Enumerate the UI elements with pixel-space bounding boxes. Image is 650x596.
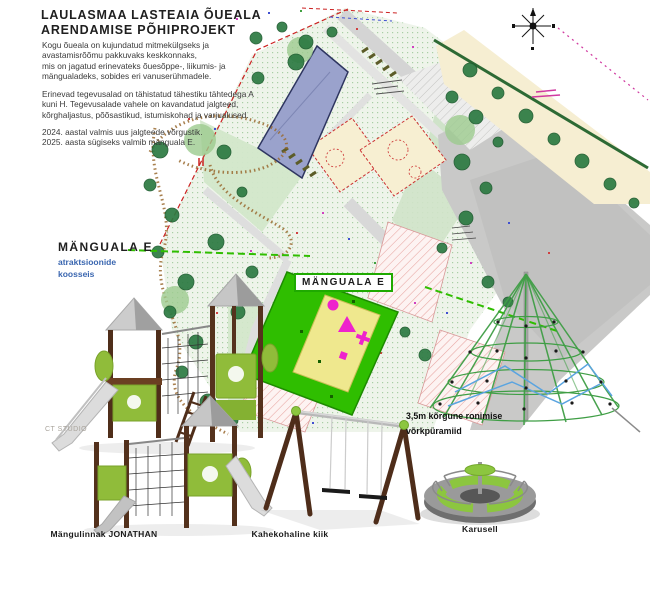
zones-line: kuni H. Tegevusalade vahele on kavandatu… xyxy=(42,99,254,109)
map-zone-label: MÄNGUALA E xyxy=(294,273,393,292)
label-playground-castle: Mängulinnak JONATHAN xyxy=(44,529,164,539)
intro-line: mis on jagatud erinevateks õuesõppe-, li… xyxy=(42,61,226,71)
label-carousel: Karusell xyxy=(440,524,520,534)
timeline-line: 2025. aasta sügiseks valmib mänguala E. xyxy=(42,137,203,147)
label-climbing-pyramid: 3,5m kõrgune ronimise võrkpüramiid xyxy=(406,409,546,439)
carousel-illustration xyxy=(420,462,540,525)
compass-rose-icon xyxy=(512,8,555,50)
page-title: LAULASMAA LASTEAIA ÕUEALA ARENDAMISE PÕH… xyxy=(41,8,261,37)
pyramid-label-line1: 3,5m kõrgune ronimise xyxy=(406,409,546,424)
title-line-1: LAULASMAA LASTEAIA ÕUEALA xyxy=(41,8,261,23)
zone-heading-sub1: atraktsioonide xyxy=(58,257,153,269)
play-symbol-circle xyxy=(328,300,339,311)
label-double-swing: Kahekohaline kiik xyxy=(240,529,340,539)
title-line-2: ARENDAMISE PÕHIPROJEKT xyxy=(41,23,261,38)
intro-paragraph: Kogu õueala on kujundatud mitmekülgseks … xyxy=(42,40,226,82)
intro-line: Kogu õueala on kujundatud mitmekülgseks … xyxy=(42,40,226,50)
timeline-line: 2024. aastal valmis uus jalgteede võrgus… xyxy=(42,127,203,137)
boundary-line xyxy=(558,28,648,100)
zones-line: Erinevad tegevusalad on tähistatud tähes… xyxy=(42,89,254,99)
intro-line: mängualadeks, sobides eri vanuserühmadel… xyxy=(42,71,226,81)
zones-paragraph: Erinevad tegevusalad on tähistatud tähes… xyxy=(42,89,254,120)
zones-line: kõrghaljastus, põõsastikud, istumiskohad… xyxy=(42,110,254,120)
pyramid-label-line2: võrkpüramiid xyxy=(406,424,546,439)
studio-watermark: CT STUDIO xyxy=(45,426,87,433)
equipment-section-heading: MÄNGUALA E atraktsioonide koosseis xyxy=(58,240,153,280)
intro-line: avastamisrõõmu pakkuvaks keskkonnaks, xyxy=(42,50,226,60)
timeline-paragraph: 2024. aastal valmis uus jalgteede võrgus… xyxy=(42,127,203,148)
zone-heading-sub2: koosseis xyxy=(58,269,153,281)
zone-heading-title: MÄNGUALA E xyxy=(58,240,153,254)
poster-root: LAULASMAA LASTEAIA ÕUEALA ARENDAMISE PÕH… xyxy=(0,0,650,596)
